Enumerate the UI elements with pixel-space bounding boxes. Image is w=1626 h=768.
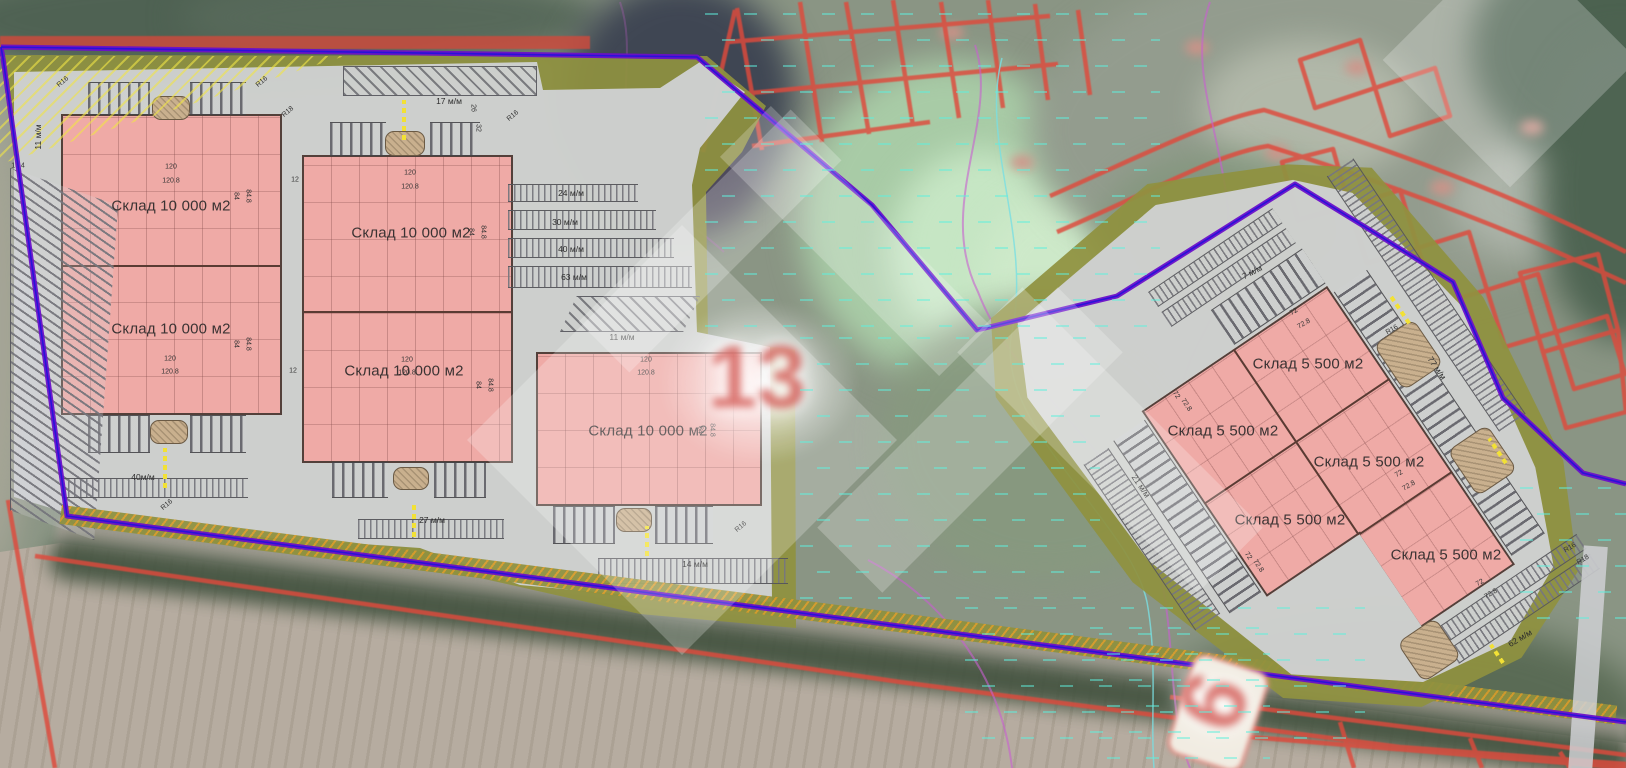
site-plan-canvas: Склад 10 000 м2Склад 10 000 м2Склад 10 0…	[0, 0, 1626, 768]
boundary-inner-line	[1, 47, 1626, 722]
boundary-outer-line	[1, 47, 1626, 722]
site-boundary	[0, 0, 1626, 768]
